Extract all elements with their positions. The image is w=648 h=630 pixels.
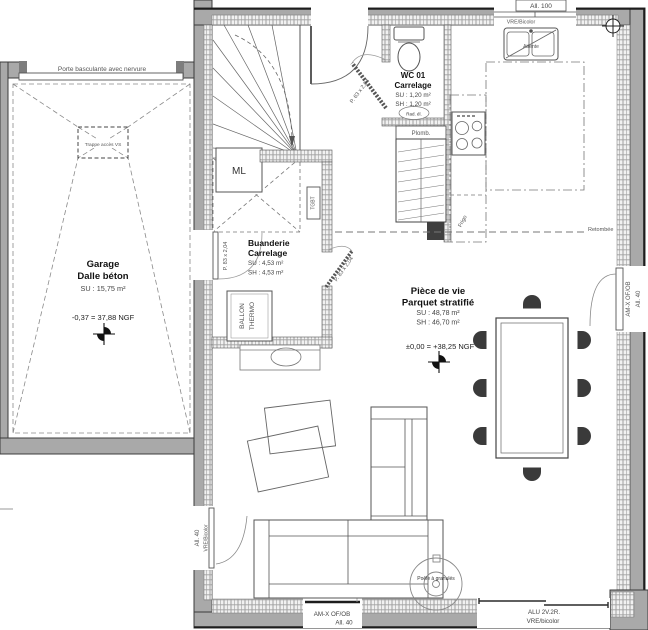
living-level-benchmark-icon (428, 351, 450, 373)
cooktop-icon (452, 112, 485, 155)
laundry-living-door: P. 83 x 2,04 (326, 246, 355, 287)
washing-machine-label: ML (232, 166, 246, 177)
wc-area-sh: SH : 1,20 m² (395, 101, 430, 108)
kitchen-zone: Frigo Attente (450, 28, 584, 242)
window-top-type: VRE/Bicolor (507, 20, 536, 26)
garage-laundry-label: P. 83 x 2,04 (223, 242, 229, 271)
garage-laundry-opening (192, 230, 214, 280)
living-zone: Retombée Pièce de vie Parquet stratifié … (247, 223, 616, 610)
garage-floor: Dalle béton (77, 271, 128, 282)
water-heater-line2: THERMO (249, 302, 256, 330)
window-top: VRE/Bicolor All. 100 (494, 0, 576, 26)
stair-walkline (235, 35, 292, 140)
window-left: All. 40 VRE/Bicolor (191, 506, 247, 570)
garage-bottom-wall (0, 438, 194, 454)
toilet-icon (394, 27, 424, 71)
laundry-name: Buanderie (248, 238, 290, 248)
window-bottom-sill: All. 40 (335, 620, 353, 627)
wc-area-su: SU : 1,20 m² (395, 92, 430, 99)
plumbing-label: Plomb. (412, 131, 431, 137)
chair-icon (473, 379, 487, 397)
laundry-wall-right-upper (322, 162, 332, 252)
window-left-type: VRE/Bicolor (204, 524, 210, 551)
bay-window: ALU 2V.2R. VRE/bicolor (477, 598, 610, 628)
chair-icon (578, 427, 592, 445)
structural-post (427, 222, 444, 240)
garage-area: SU : 15,75 m² (80, 284, 126, 293)
garage-door-label: Porte basculante avec nervure (58, 66, 147, 73)
floor-plan: Porte basculante avec nervure Trappe acc… (0, 0, 648, 630)
wc-door-label: P. 63 x 2,04 (349, 78, 371, 104)
garage-name: Garage (87, 259, 120, 270)
chair-icon (473, 427, 487, 445)
wc-door-leaf (352, 63, 386, 108)
chair-icon (523, 468, 541, 482)
laundry-area-su: SU : 4,53 m² (248, 260, 283, 267)
entrance-door (311, 6, 368, 84)
laundry-wall-top (260, 150, 332, 162)
living-level: ±0,00 = +38,25 NGF (406, 342, 475, 351)
wc-wall-left (382, 25, 390, 62)
garage-laundry-leaf (213, 232, 218, 279)
window-bottom-type: AM-X OF/OB (314, 611, 350, 618)
chair-icon (523, 295, 541, 309)
living-area-su: SU : 48,78 m² (416, 310, 460, 317)
window-right-swing-arc (590, 274, 616, 326)
chair-icon (473, 331, 487, 349)
sofa-horizontal (254, 520, 443, 598)
kitchen-island (486, 62, 584, 190)
garage-zone: Porte basculante avec nervure Trappe acc… (0, 60, 194, 509)
wc-door: P. 63 x 2,04 (349, 55, 386, 108)
stair-treads (213, 25, 297, 155)
wc-door-arc (352, 55, 386, 63)
laundry-area-sh: SH : 4,53 m² (248, 270, 283, 277)
window-right-type: AM-X OF/OB (626, 281, 632, 316)
window-top-sill: All. 100 (530, 3, 552, 10)
console-cabinet (240, 345, 320, 370)
chair-icon (578, 379, 592, 397)
trap-label: Trappe accès VS (85, 142, 122, 148)
bay-type: ALU 2V.2R. (528, 609, 560, 616)
garage-level: -0,37 = 37,88 NGF (72, 313, 135, 322)
fridge-label: Frigo (458, 215, 469, 229)
laundry-floor: Carrelage (248, 248, 287, 258)
garage-level-benchmark-icon (93, 323, 115, 345)
beam-label: Retombée (588, 227, 613, 233)
chair-icon (578, 331, 592, 349)
pellet-stove-label: Poêle à granulés (417, 576, 455, 582)
garage-left-wall (0, 62, 8, 452)
window-left-swing-arc (216, 516, 247, 564)
entrance-opening (311, 6, 368, 26)
water-heater: BALLON THERMO (227, 291, 272, 341)
electrical-panel-label: TGBT (311, 196, 317, 209)
living-floor: Parquet stratifié (402, 298, 474, 309)
wc-name: WC 01 (401, 71, 426, 80)
living-name: Pièce de vie (411, 286, 465, 297)
window-left-sill: All. 40 (195, 529, 201, 546)
window-right-sill: All. 40 (636, 290, 642, 307)
window-right: AM-X OF/OB All. 40 (590, 266, 647, 332)
garage-door-panel (19, 73, 183, 80)
wc-zone: P. 63 x 2,04 Rad. él. WC 01 Carrelage SU… (349, 25, 451, 242)
staircase: ML (213, 25, 300, 232)
living-area-sh: SH : 46,70 m² (416, 320, 460, 327)
sink-note: Attente (523, 44, 539, 50)
wc-floor: Carrelage (395, 81, 432, 90)
dining-table (496, 318, 568, 458)
coffee-table (247, 426, 328, 492)
wc-radiator-label: Rad. él. (406, 112, 422, 117)
rug (264, 400, 335, 454)
corner-block-hatch (611, 592, 634, 617)
bay-finish: VRE/bicolor (527, 618, 560, 625)
water-heater-line1: BALLON (239, 303, 246, 329)
duct-shaft (396, 139, 446, 222)
sofa-vertical (371, 407, 427, 528)
